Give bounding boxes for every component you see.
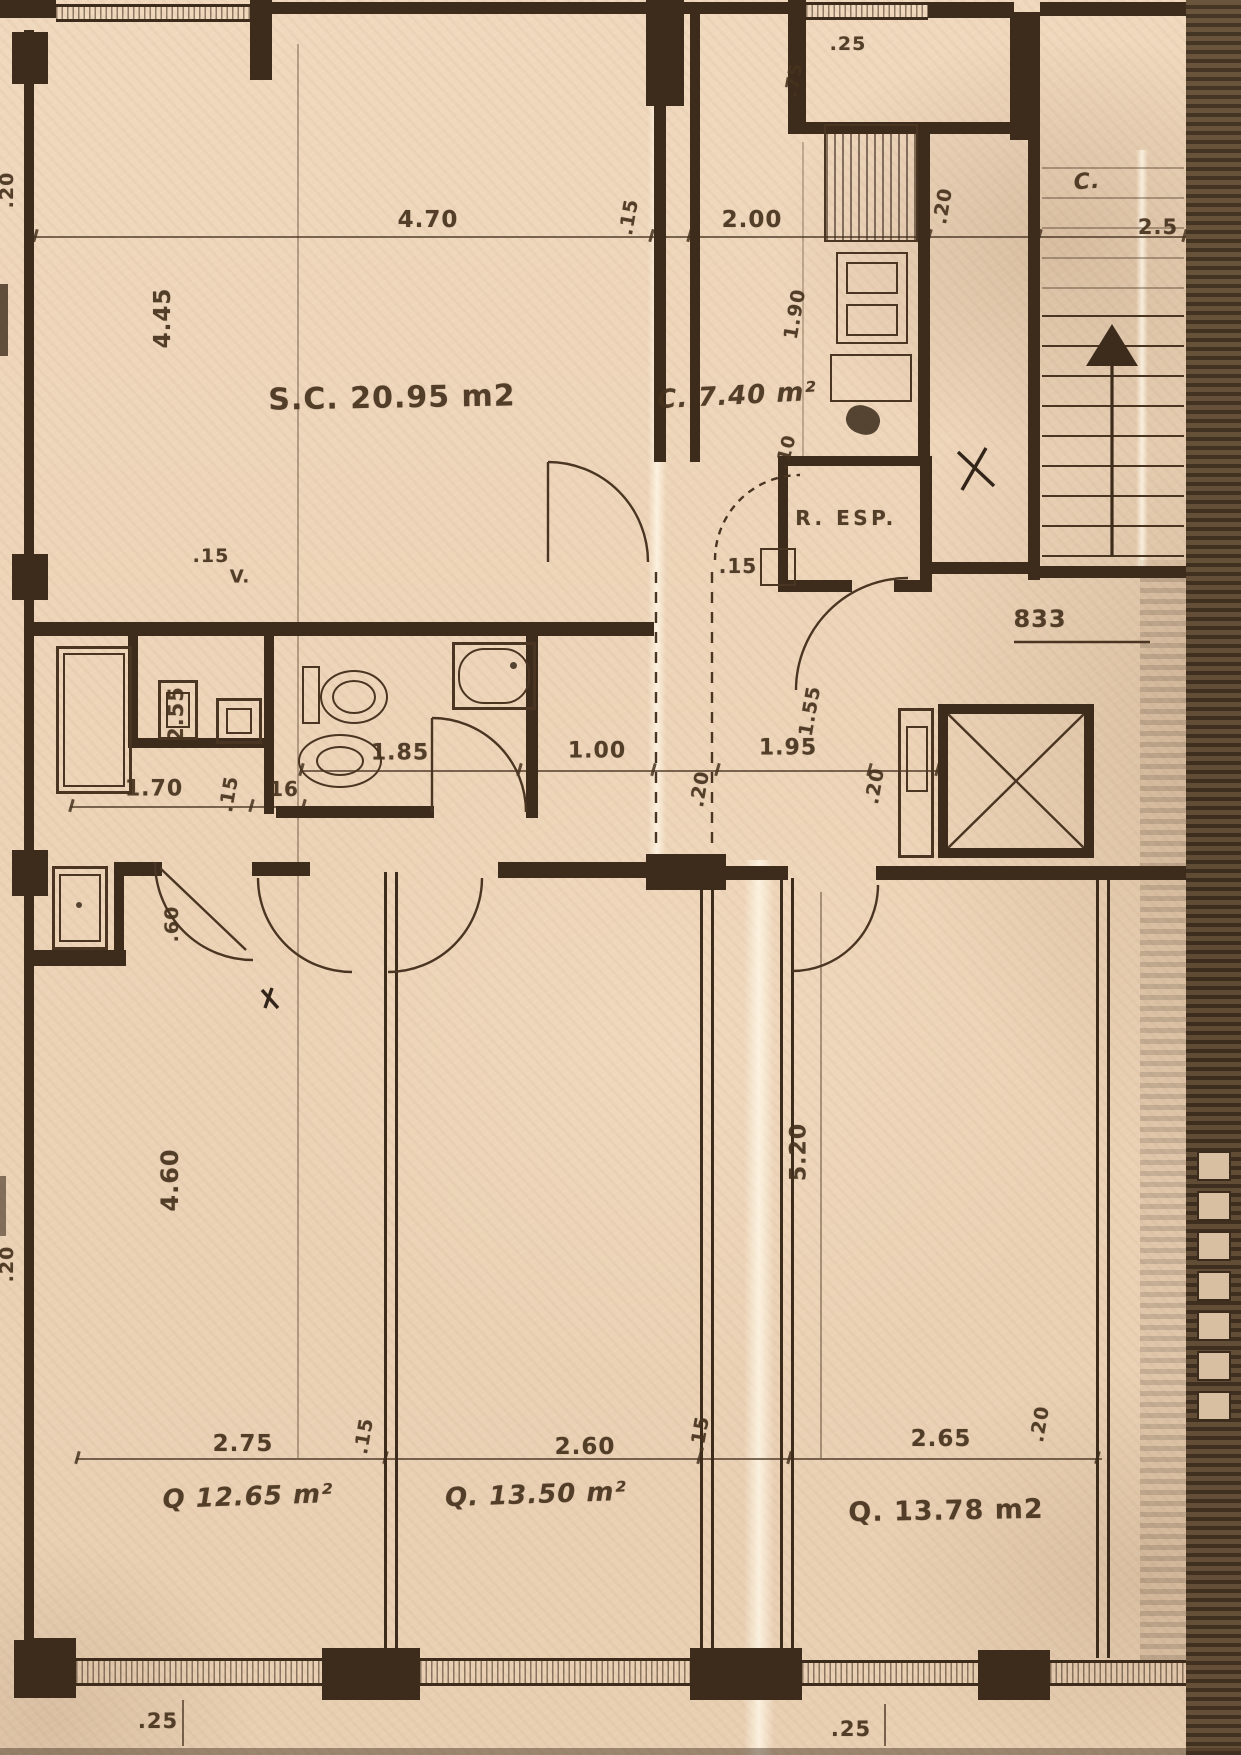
dim-25-right: 2.5 — [1138, 215, 1178, 239]
kitchen-sink-counter — [824, 124, 918, 242]
dim-200: 2.00 — [722, 207, 783, 233]
room-kitchen-label: C. 7.40 m² — [656, 377, 817, 415]
scan-edge-artifact — [0, 1176, 6, 1236]
paper-fold-strip — [1136, 150, 1148, 570]
dim-100: 1.00 — [568, 739, 626, 764]
dim-155: 1.55 — [795, 684, 826, 738]
elevator-wall — [938, 704, 1094, 714]
dimension-line-vertical-left — [297, 44, 299, 1458]
tick-bottom-right — [884, 1704, 886, 1746]
dim-15-bath: .15 — [193, 545, 230, 567]
wall-hall-bottom — [124, 862, 162, 876]
scan-shading — [1140, 560, 1190, 1660]
tick-bottom-left — [182, 1700, 184, 1746]
dim-20-b: .20 — [861, 766, 889, 806]
dim-275: 2.75 — [213, 1431, 274, 1457]
wall-top-stair — [1040, 2, 1186, 16]
stove-burner — [846, 304, 898, 336]
wall-pantry-bottom — [894, 580, 932, 592]
wall-pier — [12, 850, 48, 896]
dim-20-a: .20 — [686, 769, 714, 809]
elevator-x — [948, 714, 1084, 848]
wall-hall-bottom — [252, 862, 310, 876]
wall-pier-bottom — [322, 1648, 420, 1700]
wall-bedroom1-top-left — [34, 950, 126, 966]
window-top-left — [56, 4, 252, 22]
wall-corner-top-left — [0, 0, 56, 18]
bidet-inner — [316, 746, 364, 776]
stair-treads — [1042, 316, 1184, 556]
dim-15-mid: .15 — [719, 554, 757, 578]
dim-470: 4.70 — [398, 207, 459, 233]
elevator-x — [948, 714, 1084, 848]
dim-195: 1.95 — [759, 736, 817, 761]
window-bedroom3 — [802, 1660, 978, 1686]
wall-pier-bottom — [978, 1650, 1050, 1700]
wall-hall-bottom — [498, 862, 656, 878]
wall-pier — [12, 554, 48, 600]
window-bedroom2 — [420, 1658, 690, 1686]
door-arc-bedroom2 — [388, 878, 482, 972]
room-bedroom2-label: Q. 13.50 m² — [445, 1477, 628, 1513]
scan-edge-band — [1186, 0, 1241, 1755]
stove-burner — [846, 262, 898, 294]
wall-pantry-top — [778, 456, 930, 466]
dim-20-c: .20 — [1026, 1404, 1054, 1444]
bathtub-drain — [510, 662, 517, 669]
dim-20-top: .20 — [929, 186, 957, 226]
dim-170: 1.70 — [125, 777, 183, 802]
dim-25-top: .25 — [830, 33, 867, 55]
laundry-tub-inner — [59, 874, 101, 942]
scan-bottom-edge — [0, 1748, 1241, 1755]
pantry-step — [760, 548, 796, 586]
wall-hall-stair — [930, 562, 1030, 574]
dim-20-left-bottom: .20 — [0, 1246, 18, 1283]
wall-pier — [1010, 12, 1040, 140]
dim-25-bottom-right: .25 — [831, 1717, 871, 1741]
room-bedroom1-label: Q 12.65 m² — [162, 1479, 334, 1515]
toilet-bowl-inner — [332, 680, 376, 714]
wall-stair-left — [1028, 128, 1040, 580]
door-arc-living — [548, 462, 648, 562]
wall-pier — [250, 0, 272, 80]
stair-up-arrow — [1086, 324, 1138, 556]
laundry-fixture-inner — [226, 708, 252, 734]
dim-190: 1.90 — [780, 287, 811, 341]
wall-kitchen-right — [918, 128, 930, 464]
door-arc-hall — [796, 578, 908, 690]
wall-living-bottom — [34, 622, 654, 636]
dim-15-d: .15 — [350, 1416, 378, 1456]
wall-hall-bottom — [876, 866, 1186, 880]
window-bedroom1 — [76, 1658, 322, 1686]
toilet-tank — [302, 666, 320, 724]
dim-25-bottom-left: .25 — [138, 1709, 178, 1733]
window-balcony — [1050, 1660, 1188, 1686]
wall-pier-bottom — [24, 1638, 76, 1698]
dim-260: 2.60 — [555, 1434, 616, 1460]
door-arc-bathroom — [432, 718, 526, 812]
dimension-line-top — [34, 236, 1186, 238]
wall-laundry-nook — [114, 862, 124, 966]
wall-bath-bottom — [276, 806, 434, 818]
dim-16: 16 — [269, 777, 299, 801]
wall-pier-hall — [646, 854, 726, 890]
wall-pier-bottom — [690, 1648, 802, 1700]
dim-255: 2.55 — [164, 686, 188, 742]
dim-185: 1.85 — [371, 741, 429, 766]
wall-stair-bottom — [1028, 566, 1186, 578]
wall-hall-bottom — [724, 866, 788, 880]
dim-445: 4.45 — [150, 288, 176, 349]
wash-basin-inner — [63, 653, 125, 787]
wall-bed3-left — [780, 878, 794, 1658]
wall-pantry-right — [920, 456, 932, 590]
wall-top — [928, 2, 1014, 18]
dim-15-top: .15 — [615, 197, 643, 237]
window-top-right — [806, 2, 928, 20]
elevator-shaft-duct-inner — [906, 726, 928, 792]
dim-20-left-top: .20 — [0, 172, 18, 209]
wall-bed2-right — [700, 878, 714, 1658]
elevator-wall — [1084, 704, 1094, 858]
dimension-line-vertical-right — [820, 892, 822, 1458]
ink-scribble-x — [262, 448, 994, 1008]
bathtub-inner — [458, 648, 530, 704]
elevator-wall — [938, 704, 948, 858]
drain-dot — [76, 902, 82, 908]
level-mark: 833 — [1013, 605, 1066, 633]
dim-265: 2.65 — [911, 1426, 972, 1452]
wall-pier — [12, 32, 48, 84]
wall-top — [272, 2, 648, 14]
kitchen-appliance — [830, 354, 912, 402]
wall-bed1-bed2 — [384, 872, 398, 1658]
floor-plan-sheet: .254.70.152.00.202.5C..754.45S.C. 20.95 … — [0, 0, 1241, 1755]
room-living-label: S.C. 20.95 m2 — [268, 378, 516, 417]
door-arc-bedroom3 — [792, 885, 878, 971]
wall-top — [684, 2, 790, 14]
ink-smudge — [842, 401, 884, 439]
room-pantry-label: R. ESP. — [795, 506, 896, 530]
dim-460: 4.60 — [156, 1148, 184, 1211]
scan-edge-artifact — [0, 284, 8, 356]
dimension-line-middle — [300, 770, 940, 772]
wall-bed3-right — [1096, 880, 1110, 1658]
door-arc-bedroom1 — [258, 878, 352, 972]
room-stair-label: C. — [1073, 169, 1101, 196]
dim-520: 5.20 — [787, 1123, 812, 1181]
vent-label: V. — [230, 567, 250, 588]
elevator-wall — [938, 848, 1094, 858]
room-bedroom3-label: Q. 13.78 m2 — [848, 1494, 1044, 1528]
paper-fold-strip — [744, 860, 774, 1755]
dim-60: .60 — [161, 906, 183, 943]
